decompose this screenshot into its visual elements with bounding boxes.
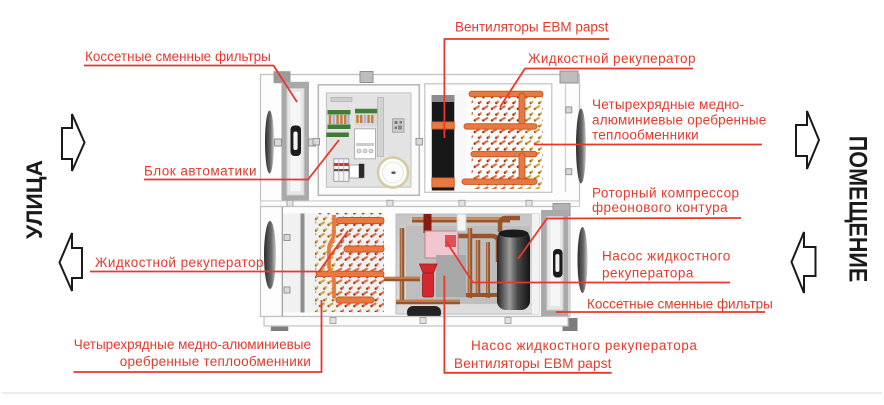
svg-text:рекуператора: рекуператора — [602, 266, 694, 281]
svg-text:оребренные теплообменники: оребренные теплообменники — [120, 354, 311, 369]
svg-text:ПОМЕЩЕНИЕ: ПОМЕЩЕНИЕ — [844, 136, 872, 282]
svg-text:Насос жидкостного: Насос жидкостного — [602, 249, 731, 264]
svg-text:Четырехрядные медно-: Четырехрядные медно- — [592, 97, 744, 112]
svg-text:фреонового контура: фреонового контура — [592, 200, 728, 215]
svg-text:Коссетные сменные фильтры: Коссетные сменные фильтры — [587, 297, 773, 312]
svg-text:теплообменники: теплообменники — [592, 128, 699, 143]
svg-text:УЛИЦА: УЛИЦА — [22, 160, 47, 239]
svg-text:Коссетные сменные фильтры: Коссетные сменные фильтры — [85, 49, 271, 64]
svg-text:Вентиляторы EBM papst: Вентиляторы EBM papst — [455, 20, 609, 35]
svg-text:Жидкостной рекуператор: Жидкостной рекуператор — [95, 255, 264, 270]
svg-text:Блок автоматики: Блок автоматики — [144, 164, 257, 179]
svg-text:Насос жидкостного рекуператора: Насос жидкостного рекуператора — [471, 338, 697, 353]
svg-text:Жидкостной рекуператор: Жидкостной рекуператор — [528, 51, 696, 66]
svg-text:Вентиляторы EBM papst: Вентиляторы EBM papst — [454, 356, 612, 371]
svg-text:Четырехрядные медно-алюминиевы: Четырехрядные медно-алюминиевые — [74, 337, 311, 352]
svg-text:алюминиевые оребренные: алюминиевые оребренные — [592, 113, 766, 128]
svg-text:Роторный компрессор: Роторный компрессор — [592, 186, 740, 201]
